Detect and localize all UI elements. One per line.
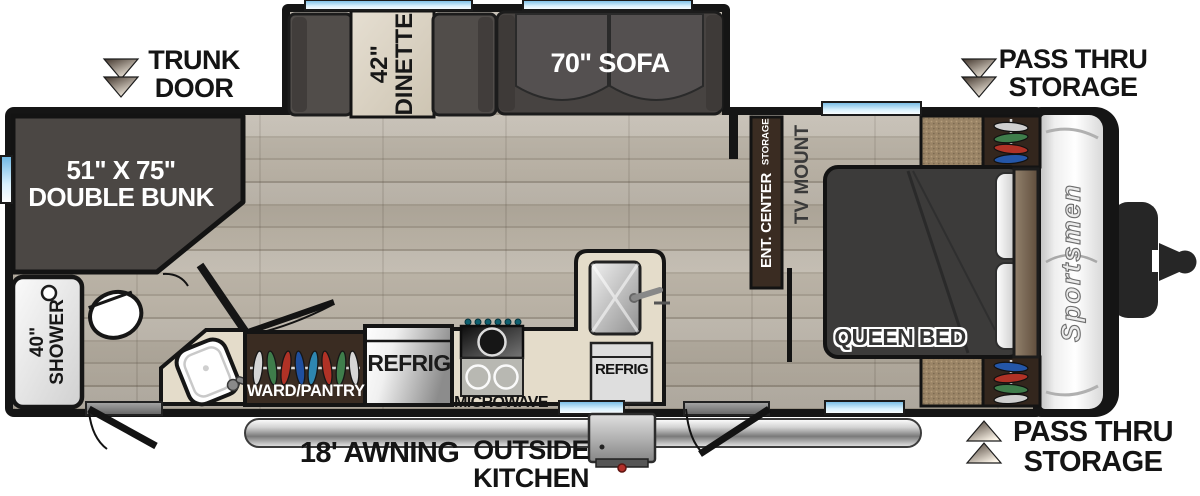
- outside-kitchen-knob: [618, 464, 626, 472]
- queen-bed-label: QUEEN BED: [830, 326, 970, 350]
- microwave-body: [461, 358, 523, 396]
- tv-mount-bracket: [787, 268, 792, 362]
- awning-label: 18' AWNING: [297, 439, 462, 469]
- trunk-door-label: TRUNKDOOR: [138, 47, 250, 103]
- window-bedroom-top: [822, 102, 921, 115]
- window-sofa: [523, 0, 692, 10]
- carpet-top: [921, 116, 983, 167]
- trunk-door-arrow-icon: [104, 59, 138, 97]
- entry-door-step: [684, 402, 769, 415]
- pass-thru-top-arrow-icon: [962, 59, 996, 97]
- outside-kitchen-label: OUTSIDEKITCHEN: [468, 437, 594, 493]
- rv-floorplan: TRUNKDOOR PASS THRUSTORAGE PASS THRUSTOR…: [0, 0, 1200, 496]
- toilet: [84, 285, 148, 345]
- brand-logo: Sportsmen: [1041, 115, 1103, 409]
- sofa-label: 70" SOFA: [540, 50, 680, 78]
- window-dinette: [305, 0, 472, 10]
- hitch-coupler: [1174, 251, 1197, 274]
- window-kitchen-bottom: [559, 401, 624, 414]
- outside-kitchen-unit: [589, 414, 655, 462]
- outside-kitchen-dot: [600, 445, 605, 450]
- sofa-arm-left: [499, 15, 515, 111]
- headboard: [1014, 169, 1038, 357]
- window-bunk-left: [1, 156, 12, 203]
- microwave-label: MICROWAVE: [447, 395, 555, 411]
- pass-thru-bottom-arrow-icon: [967, 421, 1001, 463]
- tv-mount-label: TV MOUNT: [789, 112, 817, 237]
- pass-thru-storage-bottom-label: PASS THRUSTORAGE: [1002, 418, 1184, 478]
- bedroom-wall-stub: [729, 107, 738, 159]
- window-bedroom-bottom: [825, 401, 904, 414]
- stove-knobs: [465, 319, 521, 325]
- double-bunk-label: 51" X 75"DOUBLE BUNK: [18, 157, 224, 211]
- dinette-bench-right-back: [478, 17, 493, 112]
- dinette-label: 42"DINETTE: [351, 12, 434, 116]
- hitch-notch: [1152, 250, 1159, 272]
- kitchen-refrigerator-label: REFRIG: [592, 362, 651, 377]
- stove-burner-large: [479, 329, 506, 356]
- sofa-arm-right: [706, 15, 722, 111]
- dinette-bench-left-back: [292, 17, 307, 112]
- ent-storage-label: STORAGE: [751, 114, 782, 170]
- shower-label: 40"SHOWER: [13, 277, 82, 407]
- bathroom-wall: [200, 265, 245, 331]
- bunk-door-arc: [163, 274, 188, 286]
- refrigerator-label: REFRIG: [366, 352, 452, 376]
- bathroom-door-panel: [245, 302, 334, 333]
- ent-center-label: ENT. CENTER: [751, 150, 782, 290]
- ward-pantry-label: WARD/PANTRY: [247, 383, 364, 400]
- carpet-bottom: [921, 357, 983, 406]
- pass-thru-storage-top-label: PASS THRUSTORAGE: [995, 46, 1151, 102]
